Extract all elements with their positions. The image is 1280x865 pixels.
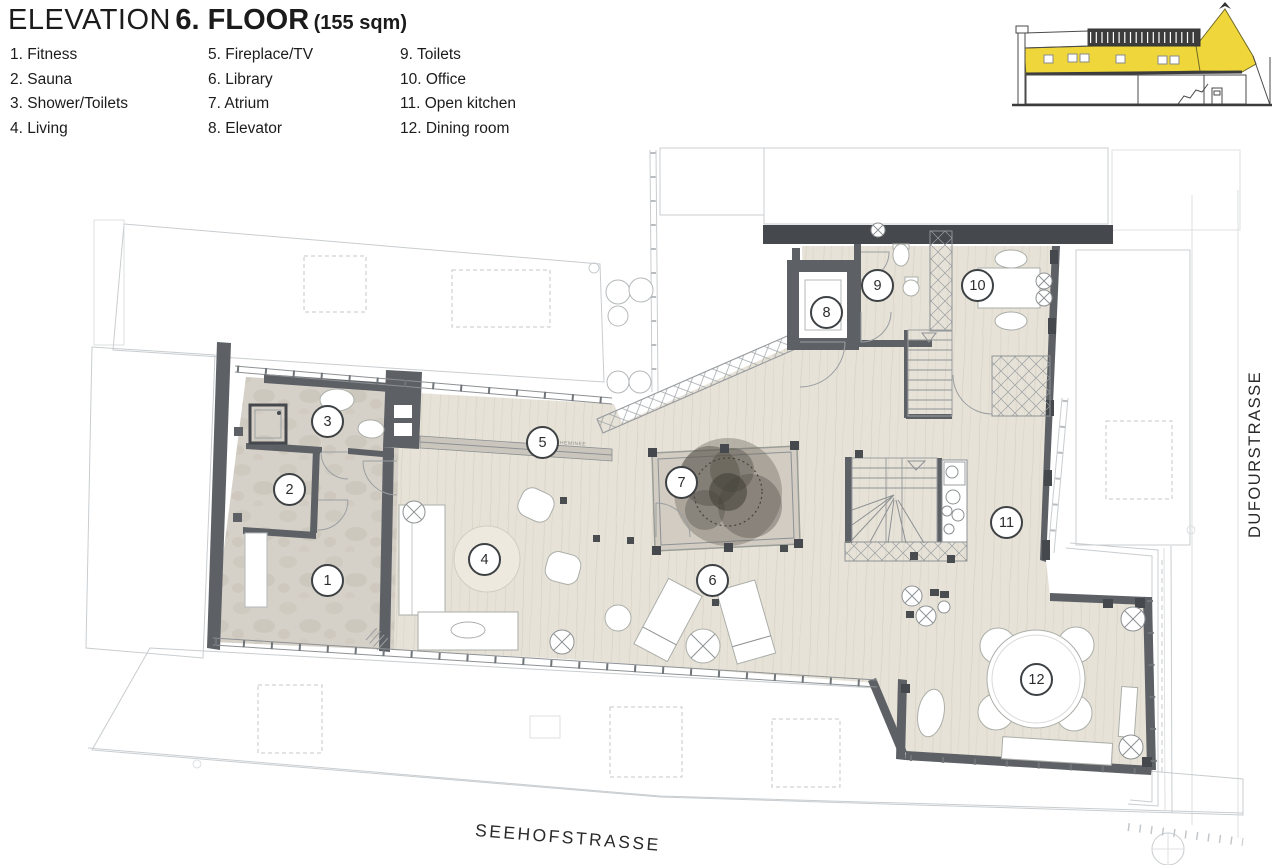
title-floor: 6. FLOOR [175, 4, 309, 36]
legend-item: 12. Dining room [400, 117, 516, 142]
room-badge-11: 11 [990, 506, 1023, 539]
legend-item: 10. Office [400, 68, 516, 93]
legend-item: 7. Atrium [208, 92, 400, 117]
kitchen-counter [942, 460, 967, 542]
highlight-roof-gable [1196, 9, 1256, 72]
room-badge-7: 7 [665, 466, 698, 499]
atrium [648, 438, 803, 555]
legend-item: 2. Sauna [10, 68, 208, 93]
room-badge-10: 10 [961, 269, 994, 302]
title-area: (155 sqm) [314, 12, 407, 34]
room-badge-9: 9 [861, 269, 894, 302]
room-badge-12: 12 [1020, 663, 1053, 696]
room-badge-3: 3 [311, 405, 344, 438]
legend-item: 9. Toilets [400, 43, 516, 68]
roof-tip [1219, 2, 1231, 9]
closet-office [992, 356, 1050, 416]
terrace-planters [606, 278, 653, 393]
legend-column-2: 5. Fireplace/TV6. Library7. Atrium8. Ele… [208, 43, 400, 141]
title-prefix: ELEVATION [8, 4, 171, 36]
legend-column-1: 1. Fitness2. Sauna3. Shower/Toilets4. Li… [10, 43, 208, 141]
street-label-dufourstrasse: DUFOURSTRASSE [1246, 371, 1265, 538]
room-badge-1: 1 [311, 564, 344, 597]
legend-item: 6. Library [208, 68, 400, 93]
floorplan-page: ELEVATION 6. FLOOR (155 sqm) 1. Fitness2… [0, 0, 1280, 865]
manhole-icon [1152, 833, 1184, 865]
legend-item: 8. Elevator [208, 117, 400, 142]
elevation-inset [1008, 2, 1274, 112]
closet-910 [930, 231, 952, 331]
room-badge-2: 2 [273, 473, 306, 506]
room-badge-4: 4 [468, 543, 501, 576]
room-badge-6: 6 [696, 564, 729, 597]
room-badge-5: 5 [526, 426, 559, 459]
legend-item: 5. Fireplace/TV [208, 43, 400, 68]
legend-item: 11. Open kitchen [400, 92, 516, 117]
room-legend: 1. Fitness2. Sauna3. Shower/Toilets4. Li… [10, 43, 516, 141]
page-title: ELEVATION 6. FLOOR (155 sqm) [8, 4, 407, 37]
room-badge-8: 8 [810, 296, 843, 329]
legend-item: 1. Fitness [10, 43, 208, 68]
legend-item: 4. Living [10, 117, 208, 142]
legend-column-3: 9. Toilets10. Office11. Open kitchen12. … [400, 43, 516, 141]
legend-item: 3. Shower/Toilets [10, 92, 208, 117]
